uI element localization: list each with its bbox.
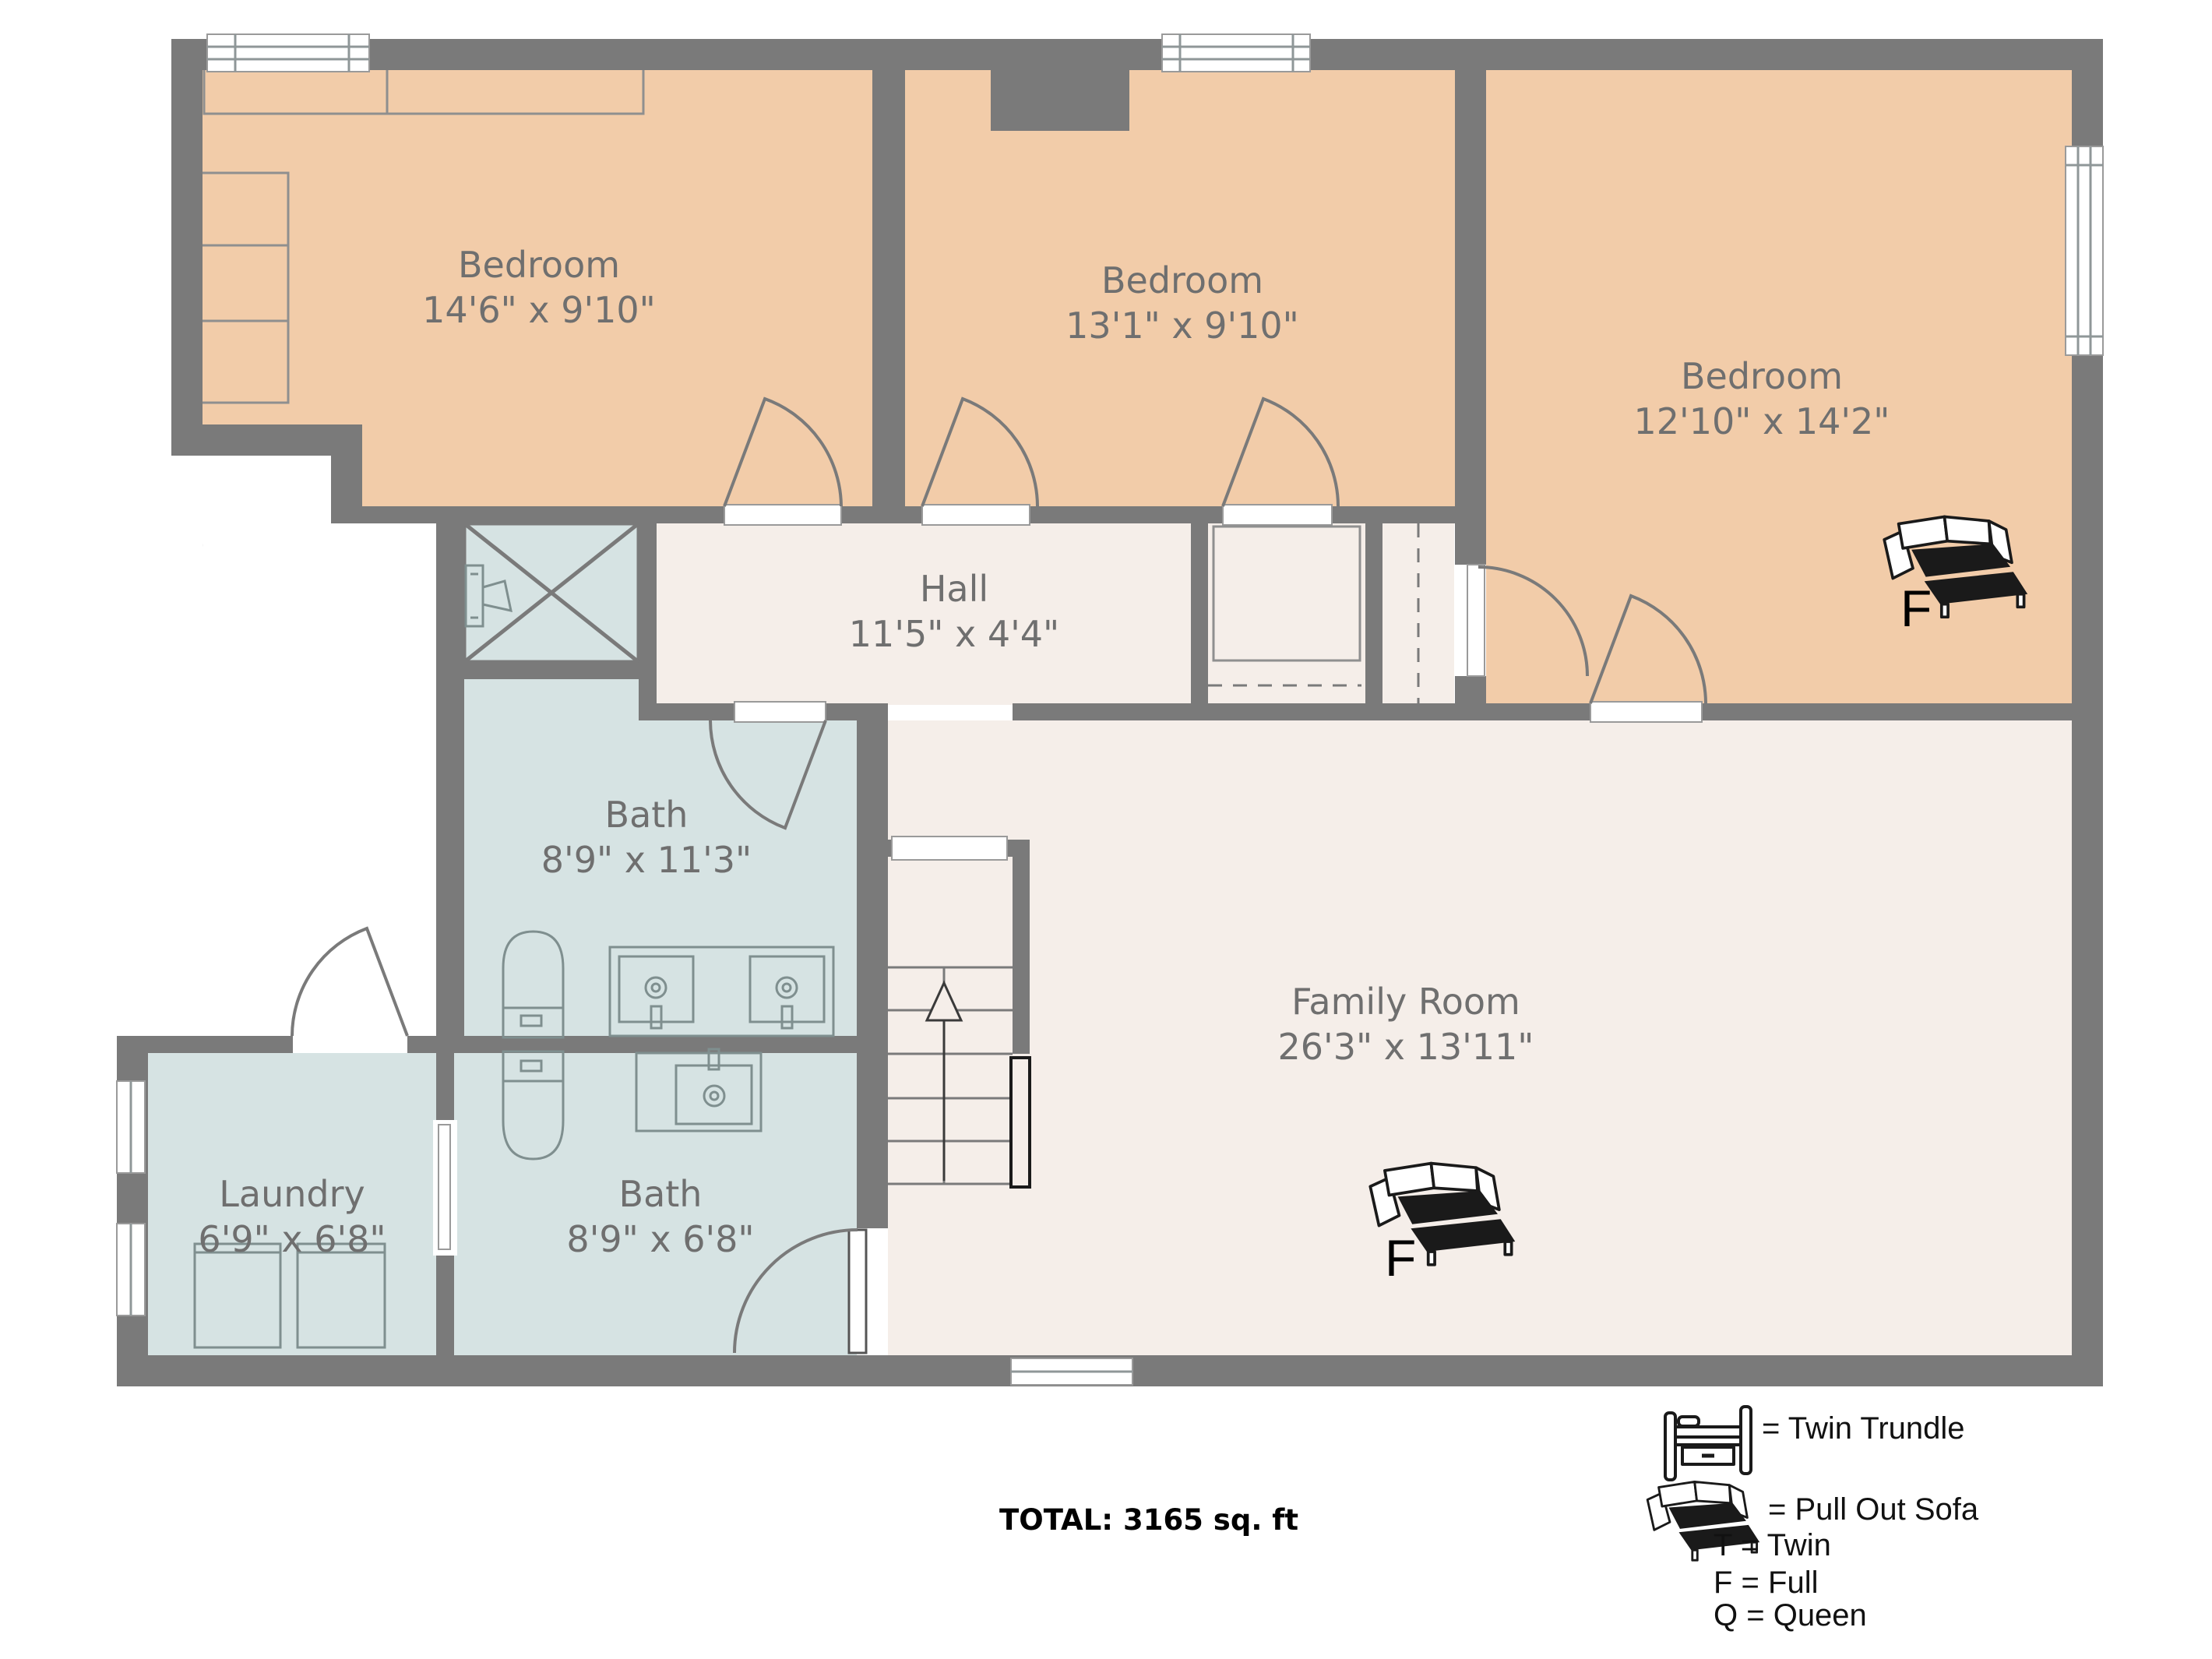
stair-handrail xyxy=(1011,1058,1030,1187)
window-bedroom1 xyxy=(207,34,369,72)
legend-queen: Q = Queen xyxy=(1714,1598,1867,1633)
legend-twin-trundle: = Twin Trundle xyxy=(1762,1411,1965,1446)
room-dims: 6'9" x 6'8" xyxy=(198,1217,386,1263)
room-label-bedroom1: Bedroom 14'6" x 9'10" xyxy=(422,243,656,333)
legend-pull-out-sofa: = Pull Out Sofa xyxy=(1768,1492,1978,1527)
room-name: Bath xyxy=(566,1172,754,1217)
room-label-bedroom3: Bedroom 12'10" x 14'2" xyxy=(1634,354,1890,445)
room-name: Bedroom xyxy=(1634,354,1890,400)
window-bedroom3 xyxy=(2066,146,2103,355)
window-laundry-2 xyxy=(117,1224,145,1316)
room-label-hall: Hall 11'5" x 4'4" xyxy=(849,567,1059,657)
room-name: Bath xyxy=(541,793,752,838)
floor-plan: Bedroom 14'6" x 9'10" Bedroom 13'1" x 9'… xyxy=(0,0,2212,1659)
room-dims: 12'10" x 14'2" xyxy=(1634,400,1890,445)
room-dims: 8'9" x 11'3" xyxy=(541,838,752,883)
twin-trundle-icon xyxy=(1665,1407,1751,1480)
floor-plan-drawing xyxy=(0,0,2212,1659)
room-dims: 13'1" x 9'10" xyxy=(1065,304,1299,349)
room-name: Family Room xyxy=(1278,980,1534,1025)
sofa-size-label-bedroom: F xyxy=(1900,583,1932,634)
room-dims: 14'6" x 9'10" xyxy=(422,288,656,333)
room-label-bath1: Bath 8'9" x 11'3" xyxy=(541,793,752,883)
legend-full: F = Full xyxy=(1714,1566,1818,1600)
total-square-footage: TOTAL: 3165 sq. ft xyxy=(999,1505,1298,1537)
room-label-bath2: Bath 8'9" x 6'8" xyxy=(566,1172,754,1263)
room-dims: 26'3" x 13'11" xyxy=(1278,1025,1534,1070)
room-dims: 11'5" x 4'4" xyxy=(849,612,1059,657)
window-bedroom2 xyxy=(1162,34,1310,72)
room-label-bedroom2: Bedroom 13'1" x 9'10" xyxy=(1065,259,1299,349)
room-label-laundry: Laundry 6'9" x 6'8" xyxy=(198,1172,386,1263)
room-name: Bedroom xyxy=(1065,259,1299,304)
window-family-room xyxy=(1011,1358,1132,1385)
room-dims: 8'9" x 6'8" xyxy=(566,1217,754,1263)
room-name: Bedroom xyxy=(422,243,656,288)
sofa-size-label-family-room: F xyxy=(1385,1232,1416,1284)
window-laundry-1 xyxy=(117,1081,145,1173)
room-name: Laundry xyxy=(198,1172,386,1217)
legend-twin: T = Twin xyxy=(1714,1528,1831,1562)
room-label-family-room: Family Room 26'3" x 13'11" xyxy=(1278,980,1534,1070)
room-name: Hall xyxy=(849,567,1059,612)
